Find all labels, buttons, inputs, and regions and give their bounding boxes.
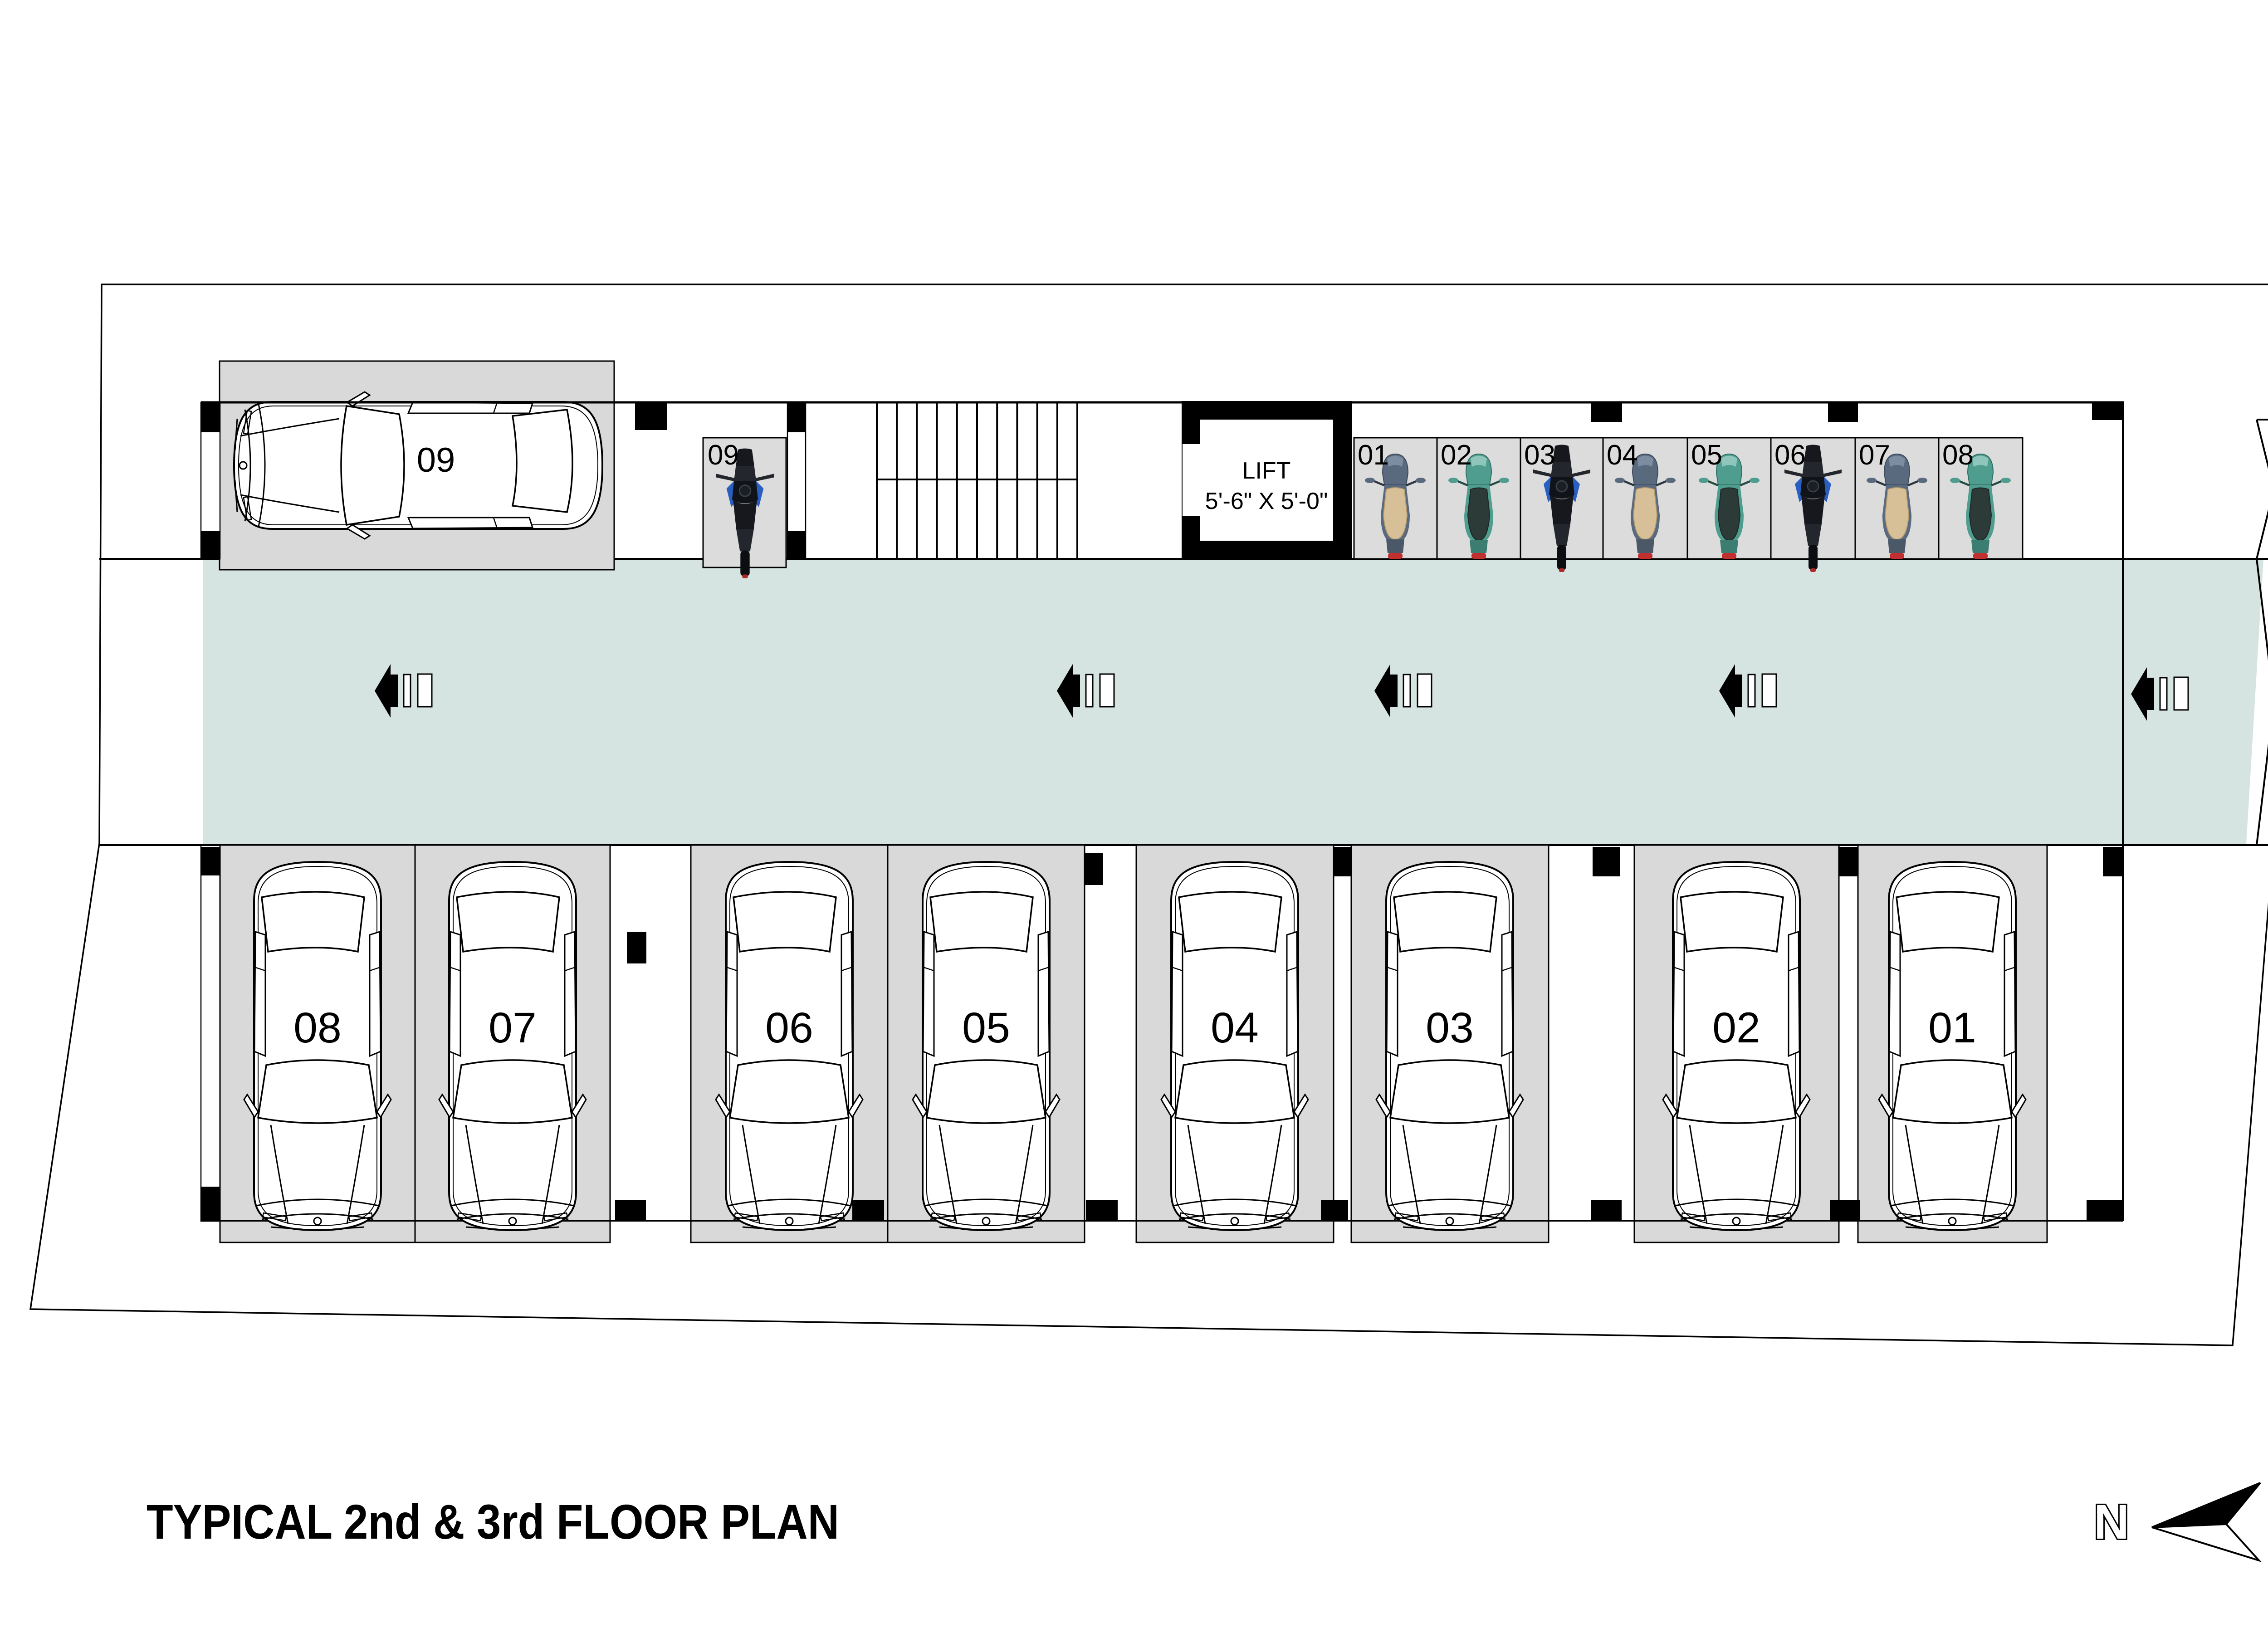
svg-text:03: 03: [1524, 440, 1555, 471]
svg-text:01: 01: [1928, 1004, 1976, 1052]
svg-text:07: 07: [489, 1004, 537, 1052]
svg-text:04: 04: [1211, 1004, 1259, 1052]
svg-text:N: N: [2094, 1494, 2129, 1549]
svg-text:03: 03: [1426, 1004, 1474, 1052]
svg-text:05: 05: [962, 1004, 1010, 1052]
svg-text:02: 02: [1712, 1004, 1760, 1052]
svg-text:05: 05: [1691, 440, 1722, 471]
svg-text:06: 06: [765, 1004, 813, 1052]
svg-text:04: 04: [1607, 440, 1638, 471]
svg-text:TYPICAL 2nd & 3rd FLOOR PLAN: TYPICAL 2nd & 3rd FLOOR PLAN: [147, 1494, 839, 1549]
svg-text:08: 08: [1942, 440, 1974, 471]
svg-text:07: 07: [1859, 440, 1890, 471]
svg-text:01: 01: [1358, 440, 1389, 471]
svg-text:06: 06: [1774, 440, 1806, 471]
svg-text:5'-6" X 5'-0": 5'-6" X 5'-0": [1205, 488, 1328, 514]
svg-text:09: 09: [417, 441, 455, 479]
svg-text:09: 09: [708, 440, 739, 471]
svg-text:LIFT: LIFT: [1242, 458, 1291, 484]
svg-text:02: 02: [1441, 440, 1472, 471]
svg-text:08: 08: [293, 1004, 342, 1052]
